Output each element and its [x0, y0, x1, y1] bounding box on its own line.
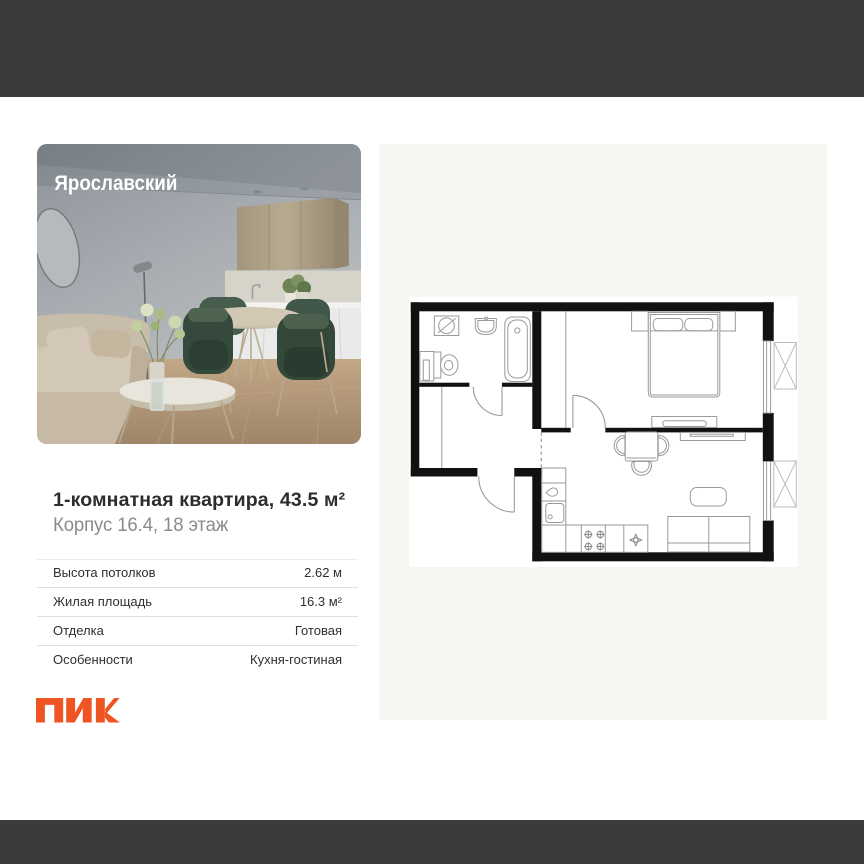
svg-text:Ярославский: Ярославский	[54, 172, 177, 195]
